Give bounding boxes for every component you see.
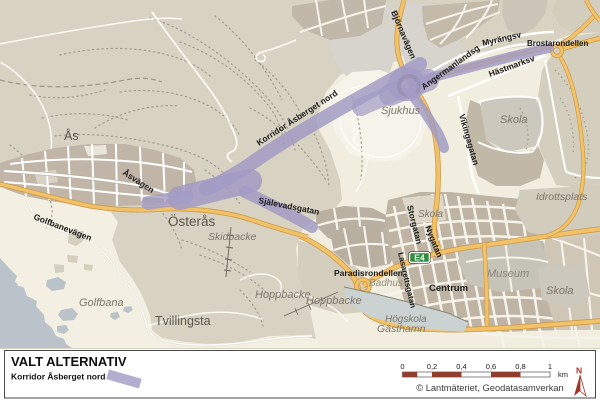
svg-text:VALT ALTERNATIV: VALT ALTERNATIV — [11, 354, 127, 369]
svg-text:Idrottsplats: Idrottsplats — [536, 191, 588, 203]
svg-text:Paradisrondellen: Paradisrondellen — [334, 268, 403, 278]
svg-text:Museum: Museum — [487, 268, 529, 280]
svg-text:0,4: 0,4 — [456, 362, 466, 371]
svg-text:0: 0 — [400, 362, 404, 371]
svg-text:Korridor Åsberget nord: Korridor Åsberget nord — [11, 372, 105, 382]
svg-text:Ås: Ås — [64, 128, 79, 143]
svg-text:Skola: Skola — [418, 209, 443, 220]
svg-text:Skidbacke: Skidbacke — [208, 231, 257, 243]
svg-text:Tvillingsta: Tvillingsta — [155, 314, 211, 328]
svg-text:Österås: Österås — [168, 214, 216, 229]
svg-text:N: N — [576, 366, 582, 376]
svg-text:E4: E4 — [414, 253, 425, 263]
svg-text:Golfbana: Golfbana — [79, 297, 124, 309]
svg-text:Sjukhus: Sjukhus — [381, 105, 421, 117]
svg-text:Gästhamn: Gästhamn — [377, 323, 426, 335]
svg-text:0,2: 0,2 — [427, 362, 437, 371]
svg-text:Hoppbacke: Hoppbacke — [306, 295, 362, 307]
svg-text:0,6: 0,6 — [486, 362, 496, 371]
svg-text:km: km — [558, 370, 568, 379]
svg-text:Brostarondellen: Brostarondellen — [527, 39, 588, 48]
svg-text:Skola: Skola — [500, 114, 528, 126]
svg-text:0,8: 0,8 — [515, 362, 525, 371]
svg-text:Centrum: Centrum — [429, 283, 468, 294]
svg-text:Badhus: Badhus — [369, 278, 403, 289]
svg-text:Hoppbacke: Hoppbacke — [255, 289, 311, 301]
svg-text:Skola: Skola — [546, 285, 574, 297]
svg-text:© Lantmäteriet, Geodatasamverk: © Lantmäteriet, Geodatasamverkan — [416, 383, 563, 393]
svg-text:1: 1 — [548, 362, 552, 371]
